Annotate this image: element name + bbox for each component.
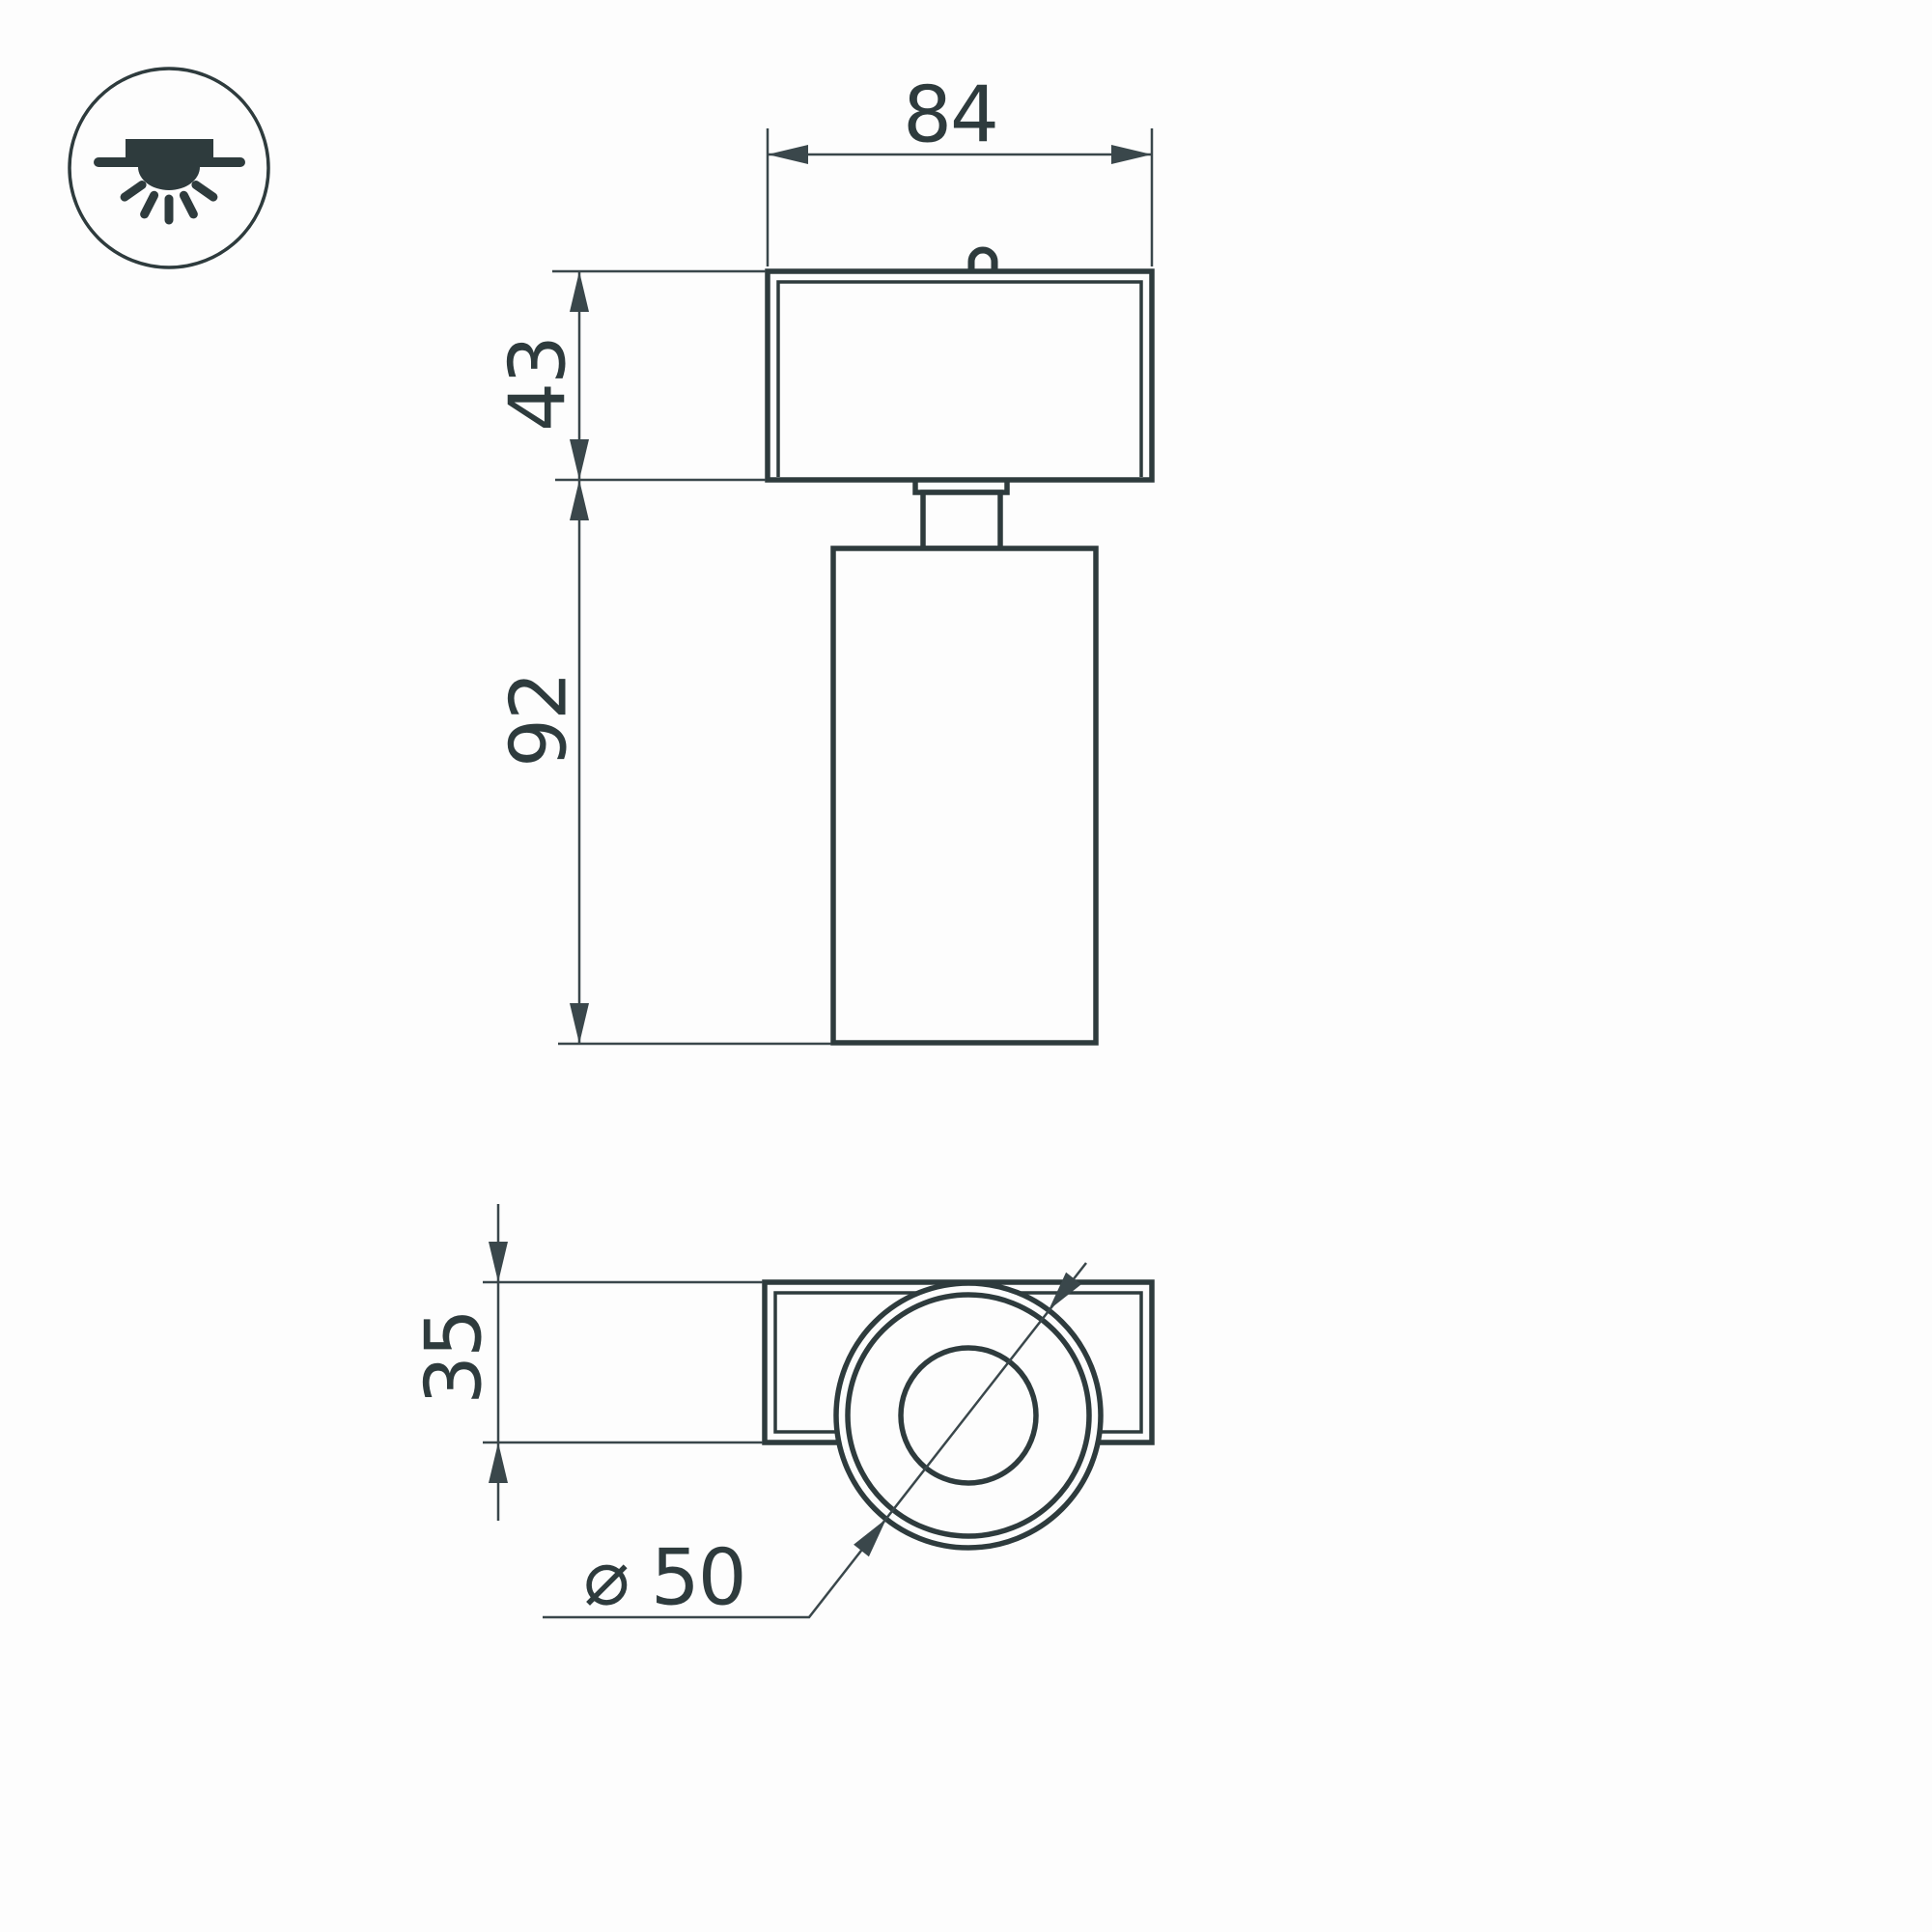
arrow-up-icon (489, 1442, 508, 1483)
dim-label-width: 84 (903, 70, 997, 160)
dim-body-height-92: 92 (494, 480, 832, 1044)
neck-stem (923, 492, 1000, 548)
mounting-box (768, 271, 1152, 480)
dim-label-body-height: 92 (494, 673, 584, 768)
arrow-down-icon (570, 1003, 589, 1044)
arrow-down-icon (489, 1242, 508, 1282)
arrow-up-right-icon (854, 1519, 886, 1556)
dim-label-cap-height: 43 (493, 337, 583, 432)
arrow-up-icon (570, 480, 589, 520)
dim-width-84: 84 (768, 70, 1152, 267)
dim-label-depth: 35 (409, 1310, 499, 1405)
dim-depth-35: 35 (409, 1204, 764, 1521)
technical-drawing-page: 84 43 92 35 ⌀ 50 (0, 0, 1932, 1932)
surface-mounted-downlight-icon (94, 139, 245, 220)
dim-label-diameter: ⌀ 50 (583, 1533, 744, 1623)
dim-cap-height-43: 43 (493, 271, 767, 480)
mount-type-badge (70, 69, 268, 267)
arrow-down-icon (570, 439, 589, 480)
icon-dome (138, 167, 200, 190)
bottom-view (765, 1282, 1152, 1548)
icon-ceiling-bar (94, 157, 245, 167)
hanging-loop (971, 250, 994, 271)
lamp-body (833, 548, 1096, 1043)
icon-can (126, 139, 213, 160)
arrow-right-icon (1111, 145, 1152, 164)
arrow-up-icon (570, 271, 589, 312)
front-view (768, 250, 1152, 1043)
drawing-canvas: 84 43 92 35 ⌀ 50 (0, 0, 1932, 1932)
arrow-left-icon (768, 145, 808, 164)
